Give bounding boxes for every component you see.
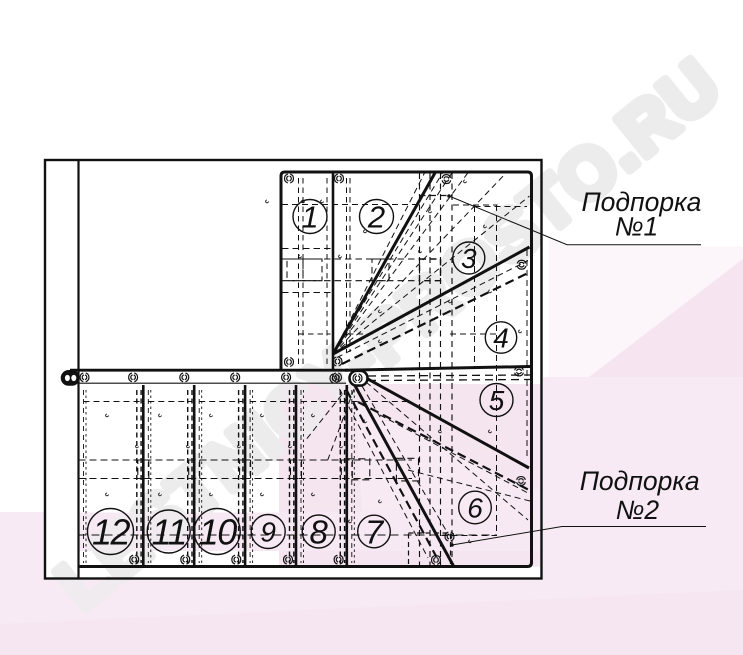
svg-text:7: 7: [365, 513, 385, 550]
svg-text:3: 3: [461, 243, 477, 274]
svg-text:8: 8: [310, 513, 329, 550]
svg-text:№1: №1: [615, 212, 658, 242]
svg-text:5: 5: [489, 385, 505, 416]
svg-text:11: 11: [152, 511, 186, 552]
svg-text:4: 4: [493, 323, 509, 354]
svg-text:№2: №2: [616, 495, 660, 525]
svg-text:10: 10: [199, 511, 238, 552]
svg-text:9: 9: [260, 517, 276, 548]
svg-text:1: 1: [301, 200, 318, 235]
svg-text:Подпорка: Подпорка: [580, 466, 700, 496]
svg-text:2: 2: [367, 200, 385, 235]
svg-text:6: 6: [467, 493, 483, 524]
svg-text:12: 12: [92, 511, 131, 552]
